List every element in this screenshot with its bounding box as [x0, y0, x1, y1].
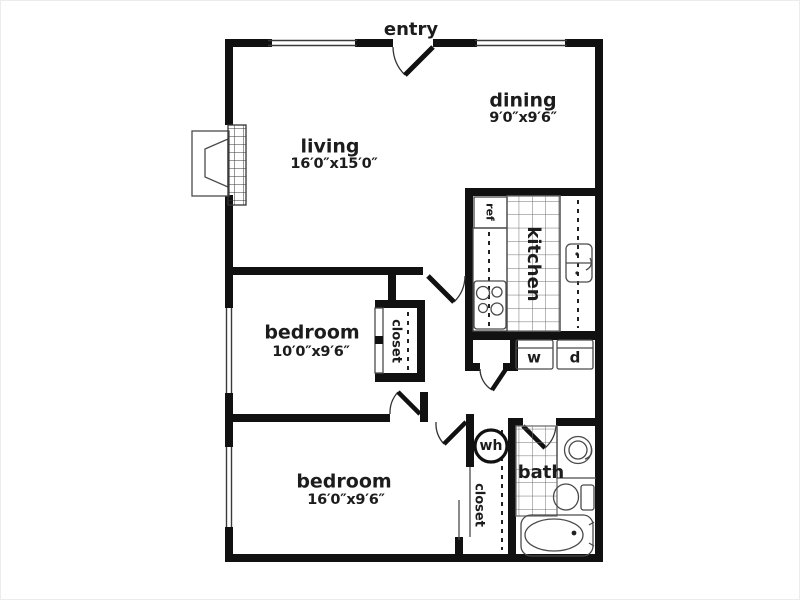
living-dimensions: 16′0″x15′0″: [290, 157, 377, 172]
dining-label: dining: [489, 92, 556, 111]
bath-fixtures: [516, 426, 596, 556]
refrigerator-label: ref: [485, 203, 496, 221]
bathtub-icon: [521, 515, 594, 556]
kitchen-pantry-door: [480, 369, 506, 390]
toilet-icon: [554, 484, 595, 510]
bedroom2-door: [436, 422, 466, 444]
living-label: living: [300, 138, 359, 157]
water-heater-label: wh: [480, 439, 503, 453]
floor-plan: entry dining 9′0″x9′6″ living 16′0″x15′0…: [0, 0, 800, 600]
fireplace: [192, 125, 246, 205]
bath-label: bath: [518, 464, 564, 482]
entry-door: [393, 47, 433, 75]
floor-plan-drawing: [0, 0, 800, 600]
hall-corridor-door: [428, 276, 465, 302]
bedroom2-dimensions: 16′0″x9′6″: [307, 493, 384, 508]
bedroom1-label: bedroom: [264, 324, 359, 343]
bedroom1-door: [390, 392, 420, 414]
dining-dimensions: 9′0″x9′6″: [489, 111, 557, 126]
bedroom2-label: bedroom: [296, 473, 391, 492]
kitchen-label: kitchen: [524, 226, 542, 301]
bedroom1-dimensions: 10′0″x9′6″: [272, 345, 349, 360]
bedroom2-closet-label: closet: [473, 483, 486, 527]
bedroom1-closet-label: closet: [390, 319, 403, 363]
kitchen-sink-icon: [566, 244, 592, 282]
washer-label: w: [527, 351, 541, 366]
bath-sink-icon: [565, 437, 592, 464]
dryer-label: d: [570, 351, 581, 366]
entry-label: entry: [384, 21, 438, 39]
